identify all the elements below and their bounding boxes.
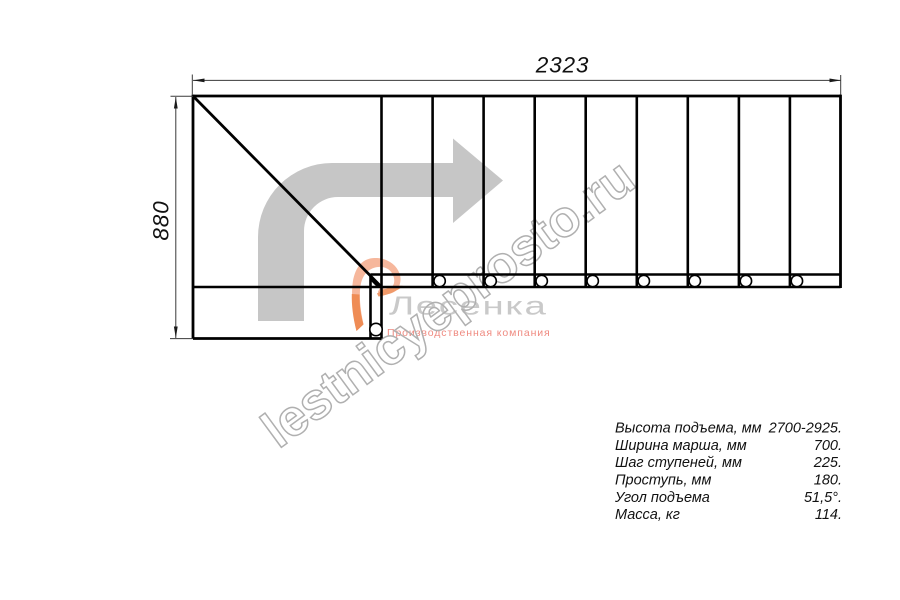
svg-text:2700-2925.: 2700-2925. [768, 421, 842, 437]
svg-text:225.: 225. [813, 455, 842, 471]
svg-text:51,5°.: 51,5°. [804, 490, 842, 506]
svg-text:180.: 180. [814, 473, 842, 489]
svg-text:2323: 2323 [535, 53, 589, 78]
svg-text:Масса, кг: Масса, кг [615, 507, 680, 523]
svg-text:Высота подъема, мм: Высота подъема, мм [615, 421, 762, 437]
svg-text:Ширина марша, мм: Ширина марша, мм [615, 438, 747, 454]
svg-text:Угол подъема: Угол подъема [614, 490, 710, 506]
svg-text:700.: 700. [814, 438, 842, 454]
svg-text:Шаг ступеней, мм: Шаг ступеней, мм [615, 455, 742, 471]
svg-text:114.: 114. [815, 507, 842, 523]
svg-text:880: 880 [148, 201, 173, 241]
svg-text:Проступь, мм: Проступь, мм [615, 473, 711, 489]
